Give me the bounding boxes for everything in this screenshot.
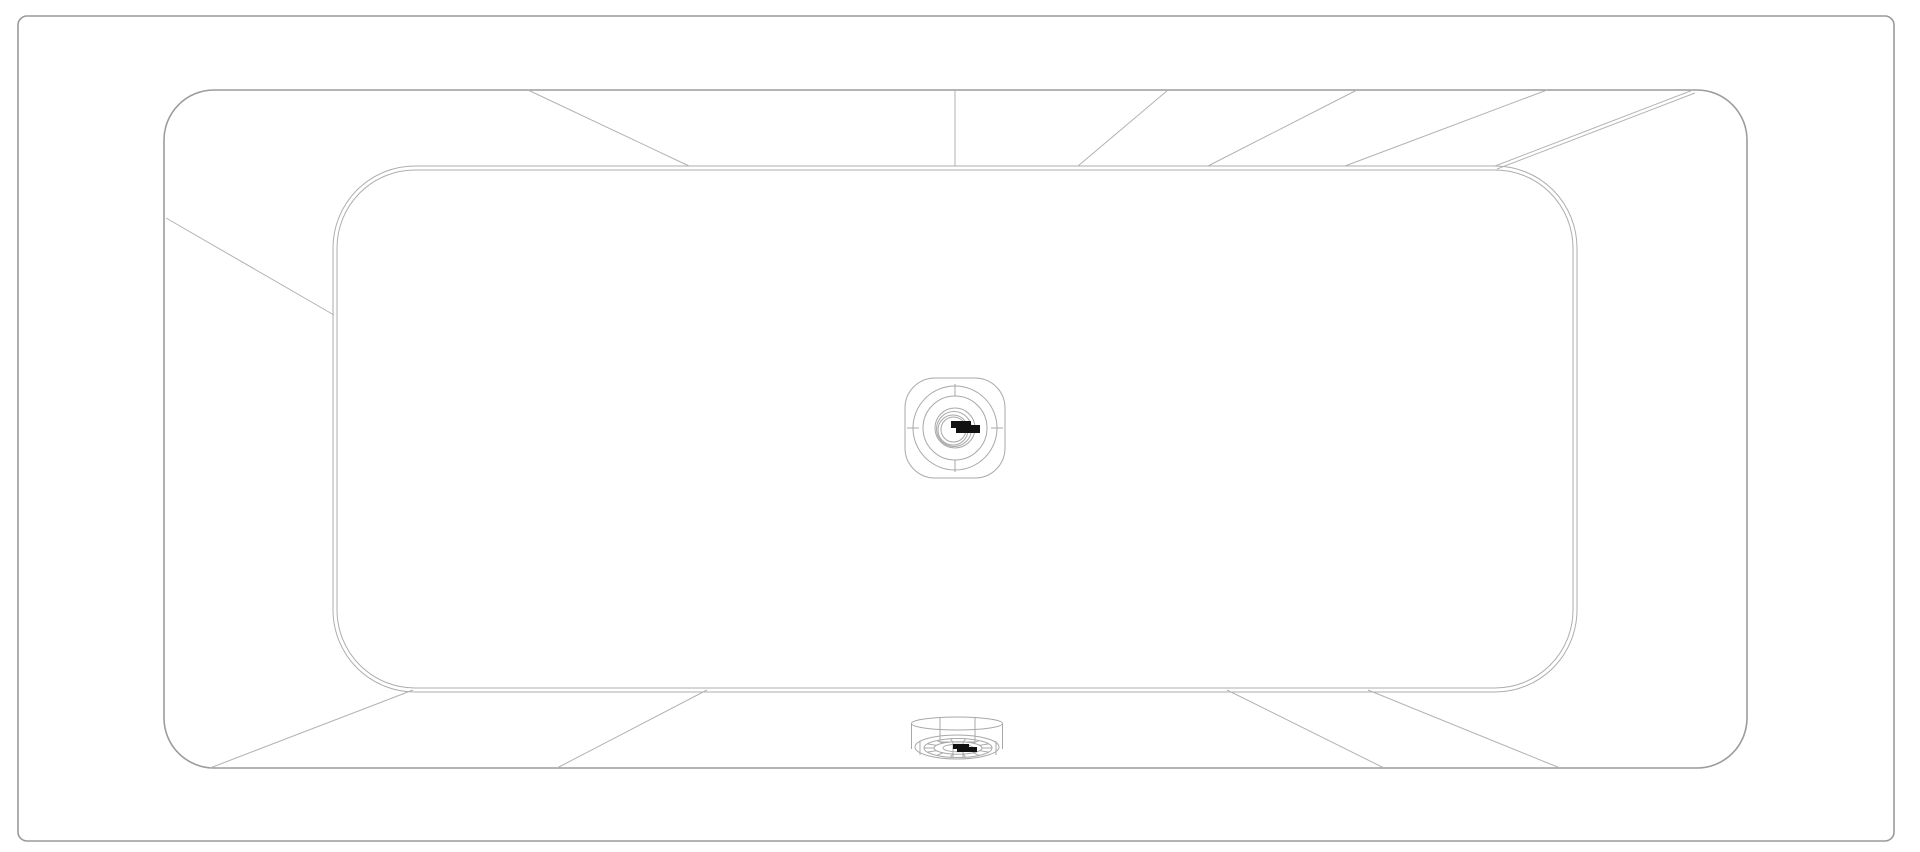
- slope-break-line: [1495, 90, 1693, 166]
- rim-outline: [164, 90, 1747, 768]
- center-drain: [905, 378, 1005, 478]
- slope-break-line: [1227, 690, 1384, 768]
- basin-inner-line: [337, 170, 1573, 688]
- overflow-grate-spoke: [950, 754, 952, 757]
- overflow-grate-spoke: [927, 751, 936, 752]
- slope-break-line: [528, 90, 689, 166]
- overflow-logo-mark: [957, 747, 977, 752]
- overflow-grate-spoke: [973, 753, 979, 756]
- overflow-grate-spoke: [927, 744, 936, 745]
- slope-break-lines: [166, 90, 1695, 768]
- overflow-ellipse: [912, 717, 1003, 730]
- basin-outer-line: [333, 166, 1577, 692]
- slope-break-line: [1078, 90, 1168, 166]
- overflow-grate-spoke: [963, 754, 965, 757]
- overflow-waste-fitting: [912, 717, 1003, 759]
- drain-logo-mark: [956, 425, 980, 433]
- overflow-grate-spoke: [950, 739, 952, 742]
- bathtub-plan-svg: [0, 0, 1920, 852]
- slope-break-line: [1497, 93, 1695, 169]
- tub-basin-outline: [333, 166, 1577, 692]
- overflow-grate-spoke: [980, 751, 989, 752]
- overflow-grate-spoke: [963, 739, 965, 742]
- slope-break-line: [1345, 90, 1547, 166]
- slope-break-line: [1208, 90, 1357, 166]
- overflow-grate-spoke: [937, 753, 943, 756]
- slope-break-line: [557, 690, 707, 768]
- slope-break-line: [210, 690, 413, 768]
- slope-break-line: [1368, 690, 1560, 768]
- drawing-canvas: [0, 0, 1920, 852]
- tub-rim-outline: [164, 90, 1747, 768]
- slope-break-line: [166, 218, 334, 315]
- overflow-grate-spoke: [980, 744, 989, 745]
